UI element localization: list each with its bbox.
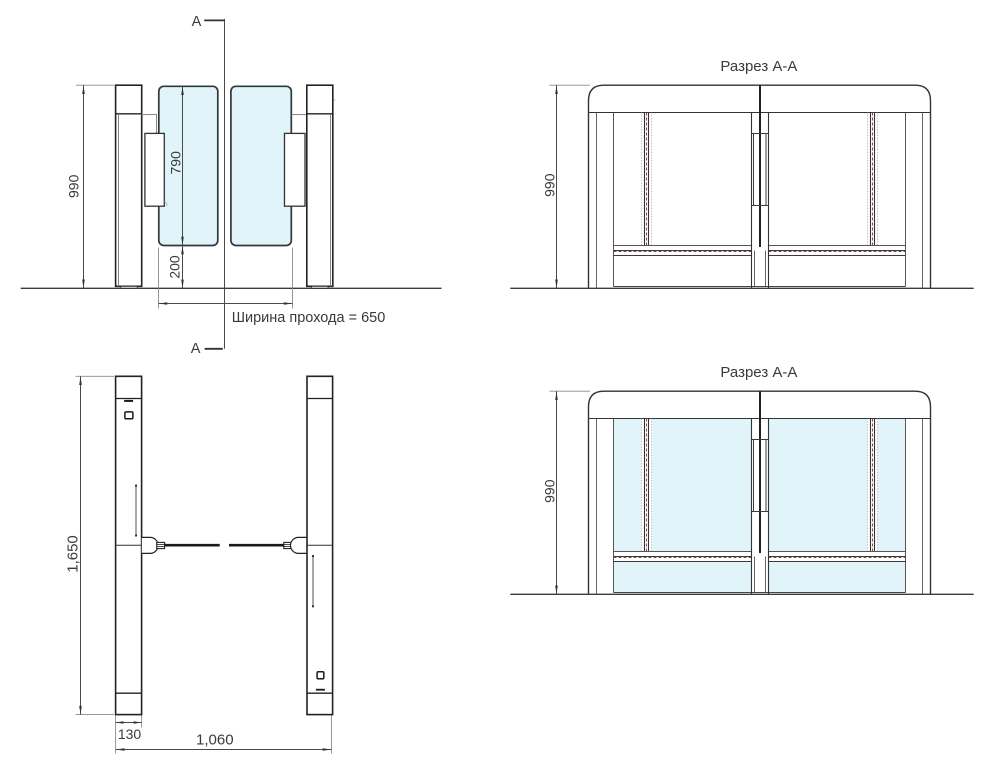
- svg-text:790: 790: [167, 151, 183, 175]
- svg-text:1,650: 1,650: [64, 535, 81, 573]
- svg-text:990: 990: [65, 174, 81, 198]
- svg-text:200: 200: [166, 255, 182, 279]
- svg-text:Разрез А-А: Разрез А-А: [720, 58, 797, 75]
- svg-text:990: 990: [541, 173, 557, 197]
- svg-text:Ширина прохода = 650: Ширина прохода = 650: [232, 310, 386, 326]
- svg-text:A: A: [191, 341, 201, 357]
- svg-text:130: 130: [118, 726, 142, 742]
- svg-text:1,060: 1,060: [196, 732, 234, 749]
- svg-text:A: A: [192, 14, 202, 30]
